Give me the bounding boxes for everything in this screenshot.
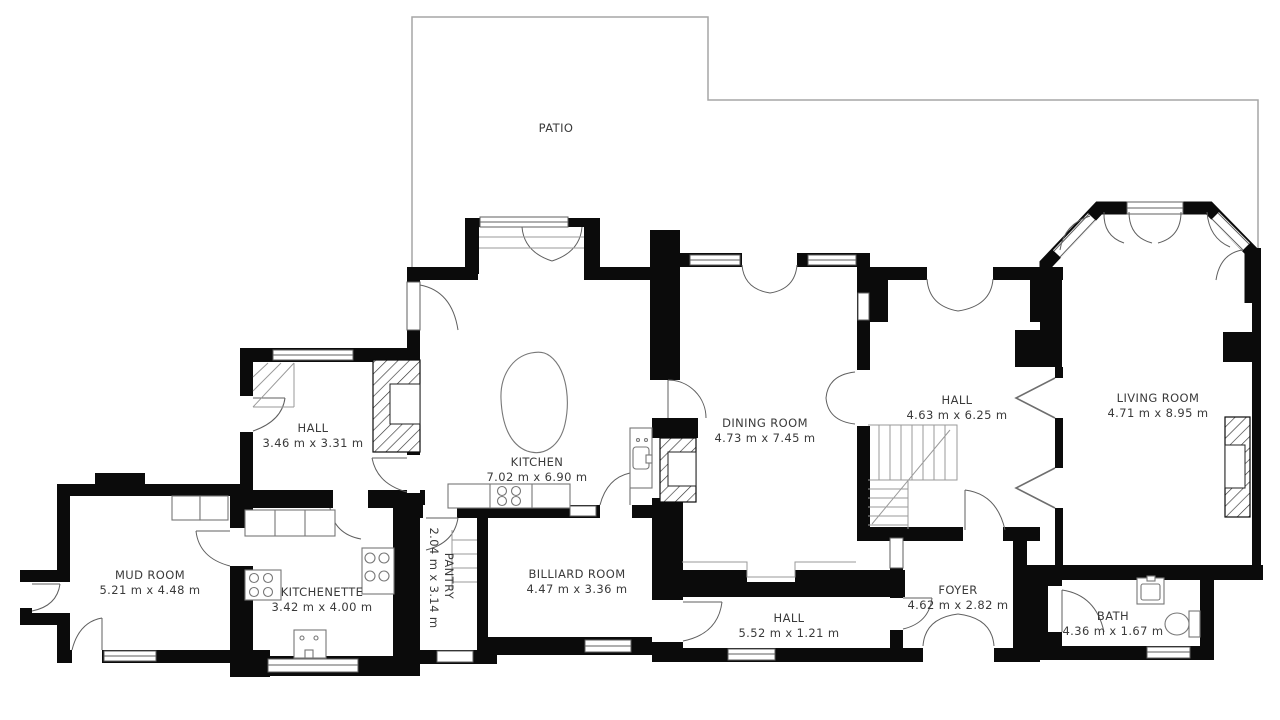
room-dims-foyer: 4.62 m x 2.82 m [907, 598, 1008, 612]
room-label-bath: BATH [1097, 609, 1129, 623]
room-label-mud: MUD ROOM [115, 568, 185, 582]
kitchen-counter [448, 484, 570, 508]
room-label-hall-west: HALL [298, 421, 329, 435]
staircase-winder [253, 363, 294, 407]
mudroom-closet [172, 496, 228, 520]
room-label-patio: PATIO [539, 121, 574, 135]
fireplace-living [1225, 417, 1250, 517]
room-dims-hall-west: 3.46 m x 3.31 m [262, 436, 363, 450]
room-dims-mud: 5.21 m x 4.48 m [99, 583, 200, 597]
room-dims-billiard: 4.47 m x 3.36 m [526, 582, 627, 596]
room-dims-living: 4.71 m x 8.95 m [1107, 406, 1208, 420]
fireplace-dining [660, 438, 696, 502]
room-dims-hall-bottom: 5.52 m x 1.21 m [738, 626, 839, 640]
room-label-foyer: FOYER [938, 583, 977, 597]
room-label-kitchenette: KITCHENETTE [281, 585, 364, 599]
room-dims-bath: 4.36 m x 1.67 m [1062, 624, 1163, 638]
staircase-main [868, 425, 957, 529]
bath-sink [1137, 576, 1164, 604]
kitchen-sink [630, 428, 652, 488]
room-dims-kitchenette: 3.42 m x 4.00 m [271, 600, 372, 614]
room-label-kitchen: KITCHEN [511, 455, 564, 469]
room-label-billiard: BILLIARD ROOM [528, 567, 625, 581]
floorplan-page: PATIO HALL 3.46 m x 3.31 m KITCHEN 7.02 … [0, 0, 1280, 720]
chimney-hall-west [373, 360, 420, 452]
floorplan-canvas: PATIO HALL 3.46 m x 3.31 m KITCHEN 7.02 … [0, 0, 1280, 720]
room-label-living: LIVING ROOM [1117, 391, 1200, 405]
kitchen-island [501, 352, 567, 452]
kitchen-bay-seat [479, 237, 584, 248]
room-label-hall-center: HALL [942, 393, 973, 407]
room-dims-hall-center: 4.63 m x 6.25 m [906, 408, 1007, 422]
toilet [1165, 611, 1200, 637]
kitchenette-fixtures [245, 510, 394, 658]
room-dims-kitchen: 7.02 m x 6.90 m [486, 470, 587, 484]
room-dims-dining: 4.73 m x 7.45 m [714, 431, 815, 445]
room-label-hall-bottom: HALL [774, 611, 805, 625]
room-label-dining: DINING ROOM [722, 416, 808, 430]
